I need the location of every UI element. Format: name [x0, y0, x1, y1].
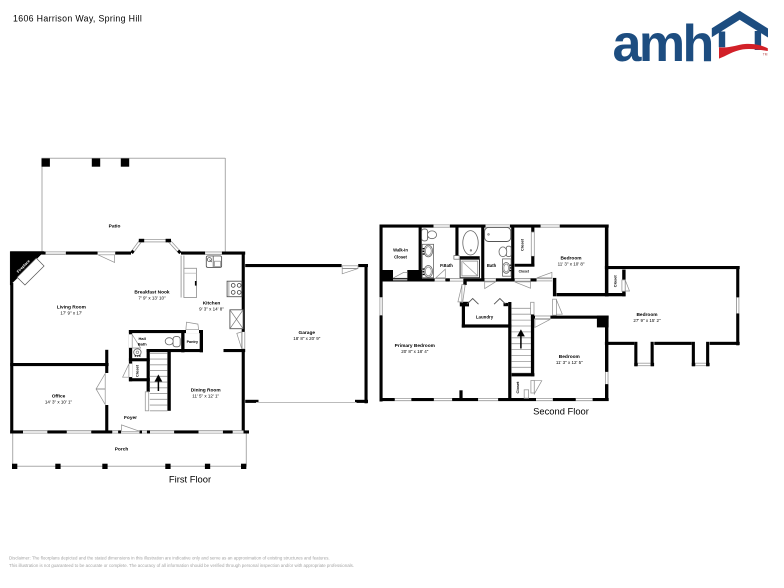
svg-text:Closet: Closet: [515, 381, 520, 394]
svg-text:Living Room: Living Room: [57, 304, 86, 310]
svg-text:Bedroom: Bedroom: [636, 312, 657, 318]
svg-text:Closet: Closet: [394, 254, 407, 259]
svg-text:Closet: Closet: [135, 364, 140, 377]
svg-text:Patio: Patio: [109, 224, 121, 230]
svg-text:1606 Harrison Way, Spring Hill: 1606 Harrison Way, Spring Hill: [13, 14, 142, 24]
svg-text:14' 3" x 10' 1": 14' 3" x 10' 1": [45, 400, 73, 405]
svg-text:Garage: Garage: [299, 330, 316, 336]
svg-text:Dining Room: Dining Room: [191, 388, 221, 394]
svg-text:Pantry: Pantry: [187, 340, 199, 344]
svg-text:18' 8" x 20' 9": 18' 8" x 20' 9": [293, 336, 321, 341]
svg-text:amh: amh: [613, 15, 712, 73]
svg-text:Breakfast Nook: Breakfast Nook: [134, 290, 170, 296]
svg-text:Laundry: Laundry: [476, 315, 494, 320]
svg-text:11' 3" x 10' 8": 11' 3" x 10' 8": [558, 261, 585, 266]
svg-text:Closet: Closet: [519, 238, 524, 251]
svg-text:Walk-In: Walk-In: [393, 248, 408, 253]
svg-text:Primary Bedroom: Primary Bedroom: [395, 343, 435, 349]
svg-text:Closet: Closet: [612, 275, 617, 288]
svg-text:20' 8" x 18' 4": 20' 8" x 18' 4": [401, 349, 429, 354]
svg-text:Disclaimer: The floorplans dep: Disclaimer: The floorplans depicted and …: [9, 556, 330, 561]
svg-text:Hall: Hall: [139, 336, 146, 341]
svg-text:Bedroom: Bedroom: [560, 255, 581, 261]
svg-text:Foyer: Foyer: [124, 415, 137, 421]
svg-text:Bath: Bath: [487, 263, 497, 268]
svg-text:This illustration is not guara: This illustration is not guaranteed to b…: [9, 563, 354, 568]
svg-text:11' 3" x 12' 5": 11' 3" x 12' 5": [556, 360, 583, 365]
svg-text:27' 9" x 15' 2": 27' 9" x 15' 2": [633, 318, 661, 323]
svg-text:Office: Office: [52, 394, 66, 400]
svg-text:P.Bath: P.Bath: [440, 263, 453, 268]
svg-text:Kitchen: Kitchen: [203, 301, 221, 307]
svg-text:11' 5" x 12' 1": 11' 5" x 12' 1": [192, 394, 219, 399]
svg-text:First Floor: First Floor: [169, 473, 211, 484]
svg-text:Porch: Porch: [115, 447, 129, 453]
svg-text:7' 9" x 13' 10": 7' 9" x 13' 10": [138, 296, 166, 301]
svg-text:9' 3" x 14' 8": 9' 3" x 14' 8": [199, 307, 224, 312]
svg-text:Bath: Bath: [138, 342, 147, 347]
svg-text:Closet: Closet: [519, 270, 530, 274]
svg-text:17' 9" x 17': 17' 9" x 17': [60, 310, 82, 315]
svg-text:Bedroom: Bedroom: [559, 354, 580, 360]
svg-text:Second Floor: Second Floor: [533, 406, 589, 417]
svg-text:TM: TM: [763, 53, 768, 57]
